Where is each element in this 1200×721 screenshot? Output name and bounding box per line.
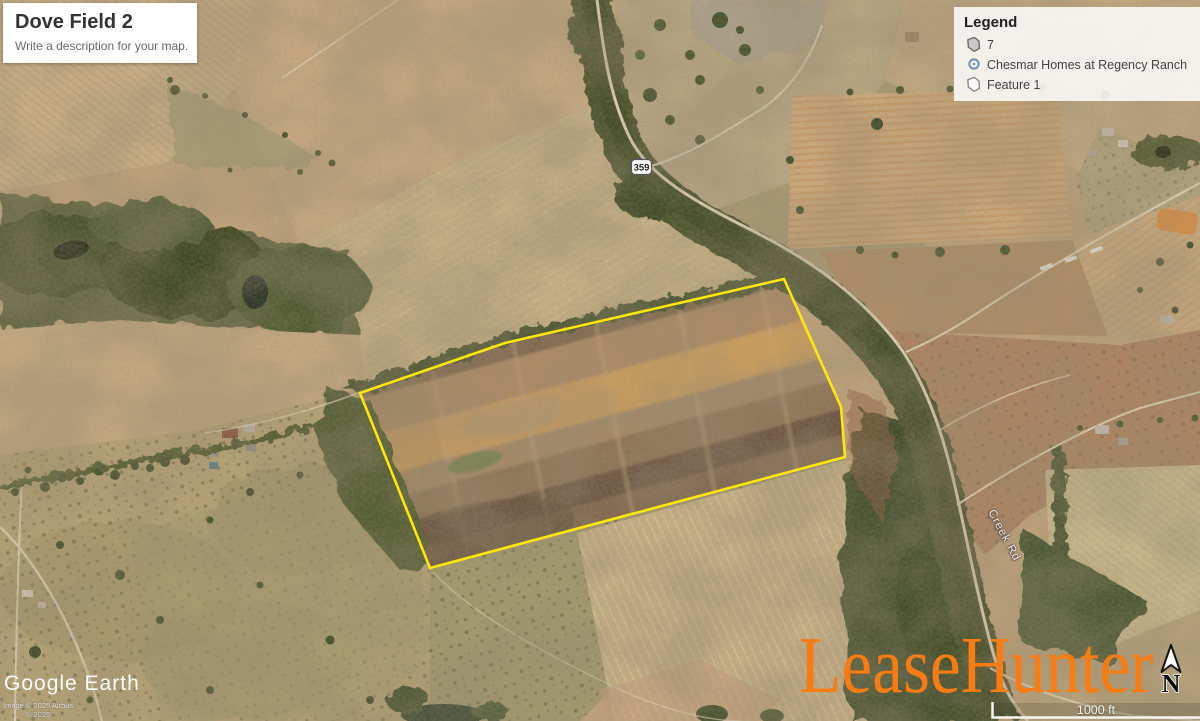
svg-text:359: 359 [634,163,650,174]
svg-text:N: N [1162,669,1181,698]
